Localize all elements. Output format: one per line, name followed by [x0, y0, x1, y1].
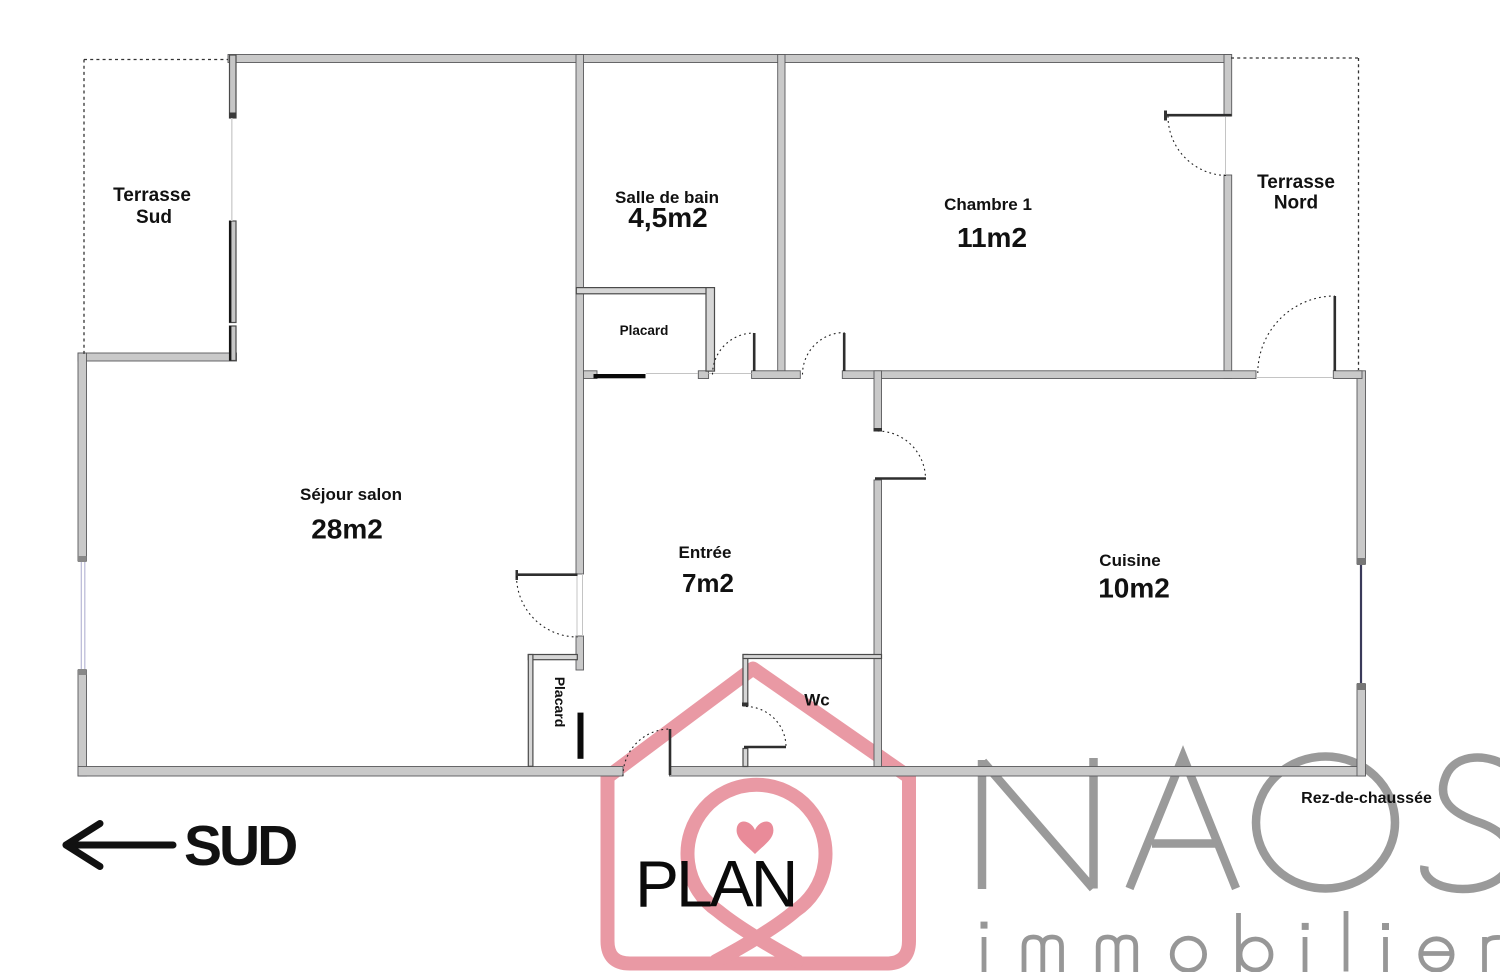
- svg-text:Terrasse: Terrasse: [113, 185, 191, 206]
- svg-text:Séjour salon: Séjour salon: [300, 485, 402, 504]
- svg-text:4,5m2: 4,5m2: [628, 202, 707, 233]
- svg-text:Terrasse: Terrasse: [1257, 172, 1335, 193]
- svg-text:Nord: Nord: [1274, 193, 1318, 214]
- svg-text:Placard: Placard: [552, 677, 568, 728]
- svg-text:Sud: Sud: [136, 207, 172, 228]
- svg-text:Wc: Wc: [804, 691, 830, 710]
- svg-text:SUD: SUD: [184, 814, 296, 878]
- svg-text:Cuisine: Cuisine: [1099, 551, 1160, 570]
- svg-text:11m2: 11m2: [957, 222, 1027, 253]
- svg-text:10m2: 10m2: [1098, 573, 1170, 604]
- svg-text:PLAN: PLAN: [635, 847, 795, 921]
- svg-text:Entrée: Entrée: [679, 543, 732, 562]
- svg-text:28m2: 28m2: [311, 514, 383, 545]
- svg-text:Chambre 1: Chambre 1: [944, 195, 1032, 214]
- svg-text:Placard: Placard: [620, 323, 669, 338]
- svg-text:Rez-de-chaussée: Rez-de-chaussée: [1301, 790, 1432, 807]
- svg-text:7m2: 7m2: [682, 568, 734, 598]
